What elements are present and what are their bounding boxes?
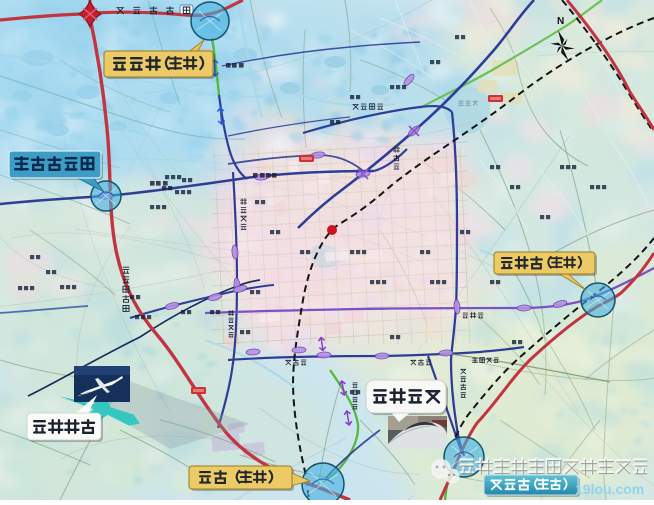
svg-text:19lou.com: 19lou.com — [575, 481, 644, 497]
svg-text:N: N — [557, 16, 564, 27]
